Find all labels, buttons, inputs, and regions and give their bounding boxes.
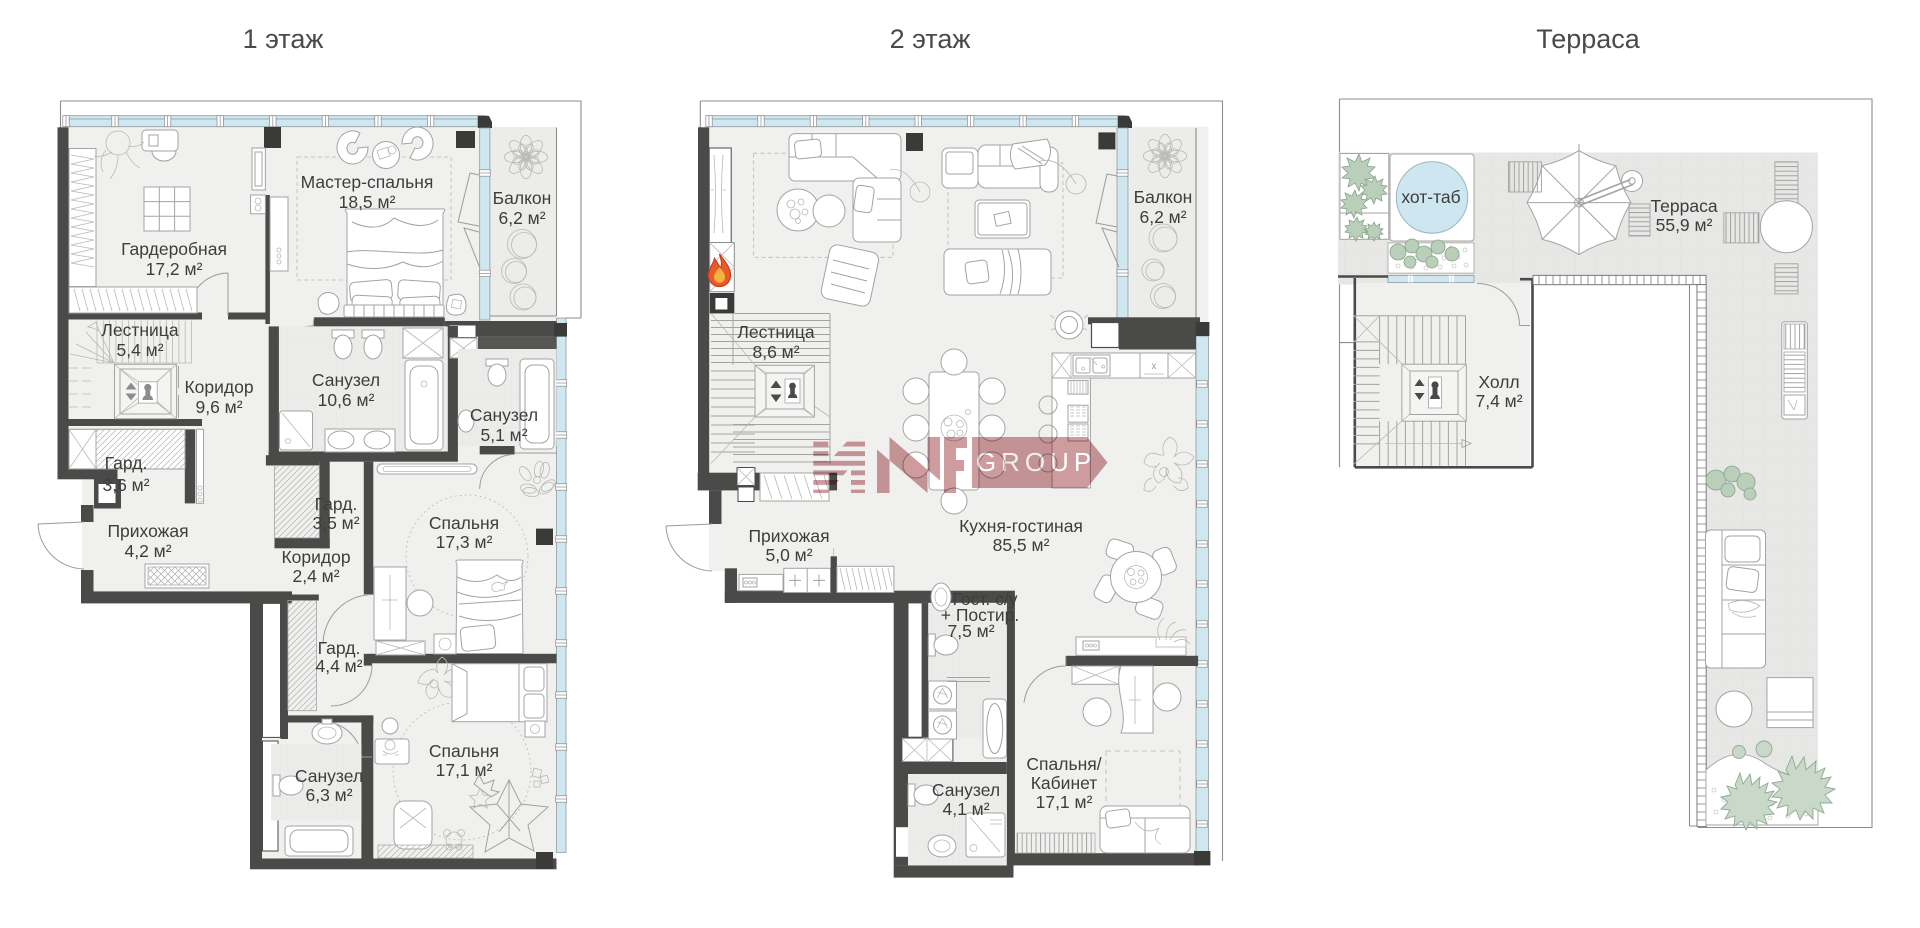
svg-text:85,5 м²: 85,5 м² <box>993 535 1050 555</box>
svg-text:Терраса: Терраса <box>1650 196 1717 216</box>
svg-text:Спальня/: Спальня/ <box>1026 754 1101 774</box>
svg-text:Гард.: Гард. <box>315 494 358 514</box>
svg-text:Кухня-гостиная: Кухня-гостиная <box>959 516 1083 536</box>
svg-text:8,6 м²: 8,6 м² <box>752 342 799 362</box>
svg-text:1 этаж: 1 этаж <box>243 24 324 54</box>
svg-text:Мастер-спальня: Мастер-спальня <box>301 172 434 192</box>
svg-text:Балкон: Балкон <box>1134 187 1193 207</box>
svg-text:Спальня: Спальня <box>429 741 499 761</box>
svg-text:Коридор: Коридор <box>281 547 350 567</box>
svg-text:Лестница: Лестница <box>737 322 814 342</box>
svg-text:Прихожая: Прихожая <box>107 521 188 541</box>
svg-text:хот-таб: хот-таб <box>1401 187 1460 207</box>
svg-text:5,4 м²: 5,4 м² <box>116 340 163 360</box>
svg-text:Лестница: Лестница <box>101 320 178 340</box>
svg-text:4,4 м²: 4,4 м² <box>315 656 362 676</box>
svg-text:7,4 м²: 7,4 м² <box>1475 391 1522 411</box>
svg-text:Санузел: Санузел <box>312 370 380 390</box>
svg-text:6,3 м²: 6,3 м² <box>305 785 352 805</box>
svg-text:17,2 м²: 17,2 м² <box>146 259 203 279</box>
svg-text:3,5 м²: 3,5 м² <box>312 513 359 533</box>
svg-text:10,6 м²: 10,6 м² <box>318 390 375 410</box>
svg-text:17,3 м²: 17,3 м² <box>436 532 493 552</box>
svg-text:Прихожая: Прихожая <box>748 526 829 546</box>
svg-text:6,2 м²: 6,2 м² <box>1139 207 1186 227</box>
svg-text:Санузел: Санузел <box>295 766 363 786</box>
svg-text:Санузел: Санузел <box>470 405 538 425</box>
svg-text:Спальня: Спальня <box>429 513 499 533</box>
svg-text:4,2 м²: 4,2 м² <box>124 541 171 561</box>
svg-text:55,9 м²: 55,9 м² <box>1656 215 1713 235</box>
svg-text:Гардеробная: Гардеробная <box>121 239 227 259</box>
svg-text:6,2 м²: 6,2 м² <box>498 208 545 228</box>
svg-text:18,5 м²: 18,5 м² <box>339 192 396 212</box>
svg-text:Санузел: Санузел <box>932 780 1000 800</box>
svg-text:Коридор: Коридор <box>184 377 253 397</box>
svg-text:Гард.: Гард. <box>105 453 148 473</box>
svg-text:17,1 м²: 17,1 м² <box>1036 792 1093 812</box>
svg-text:17,1 м²: 17,1 м² <box>436 760 493 780</box>
svg-text:Кабинет: Кабинет <box>1031 773 1098 793</box>
svg-text:Терраса: Терраса <box>1536 24 1641 54</box>
svg-text:Балкон: Балкон <box>493 188 552 208</box>
svg-text:9,6 м²: 9,6 м² <box>195 397 242 417</box>
svg-text:5,1 м²: 5,1 м² <box>480 425 527 445</box>
svg-text:4,1 м²: 4,1 м² <box>942 799 989 819</box>
svg-text:5,0 м²: 5,0 м² <box>765 545 812 565</box>
svg-text:x: x <box>1152 361 1157 372</box>
svg-text:2,4 м²: 2,4 м² <box>292 566 339 586</box>
svg-text:3,6 м²: 3,6 м² <box>102 475 149 495</box>
svg-text:Гард.: Гард. <box>318 638 361 658</box>
svg-text:Холл: Холл <box>1478 372 1519 392</box>
svg-text:GROUP: GROUP <box>976 447 1096 477</box>
svg-text:7,5 м²: 7,5 м² <box>947 621 994 641</box>
svg-text:2 этаж: 2 этаж <box>890 24 971 54</box>
